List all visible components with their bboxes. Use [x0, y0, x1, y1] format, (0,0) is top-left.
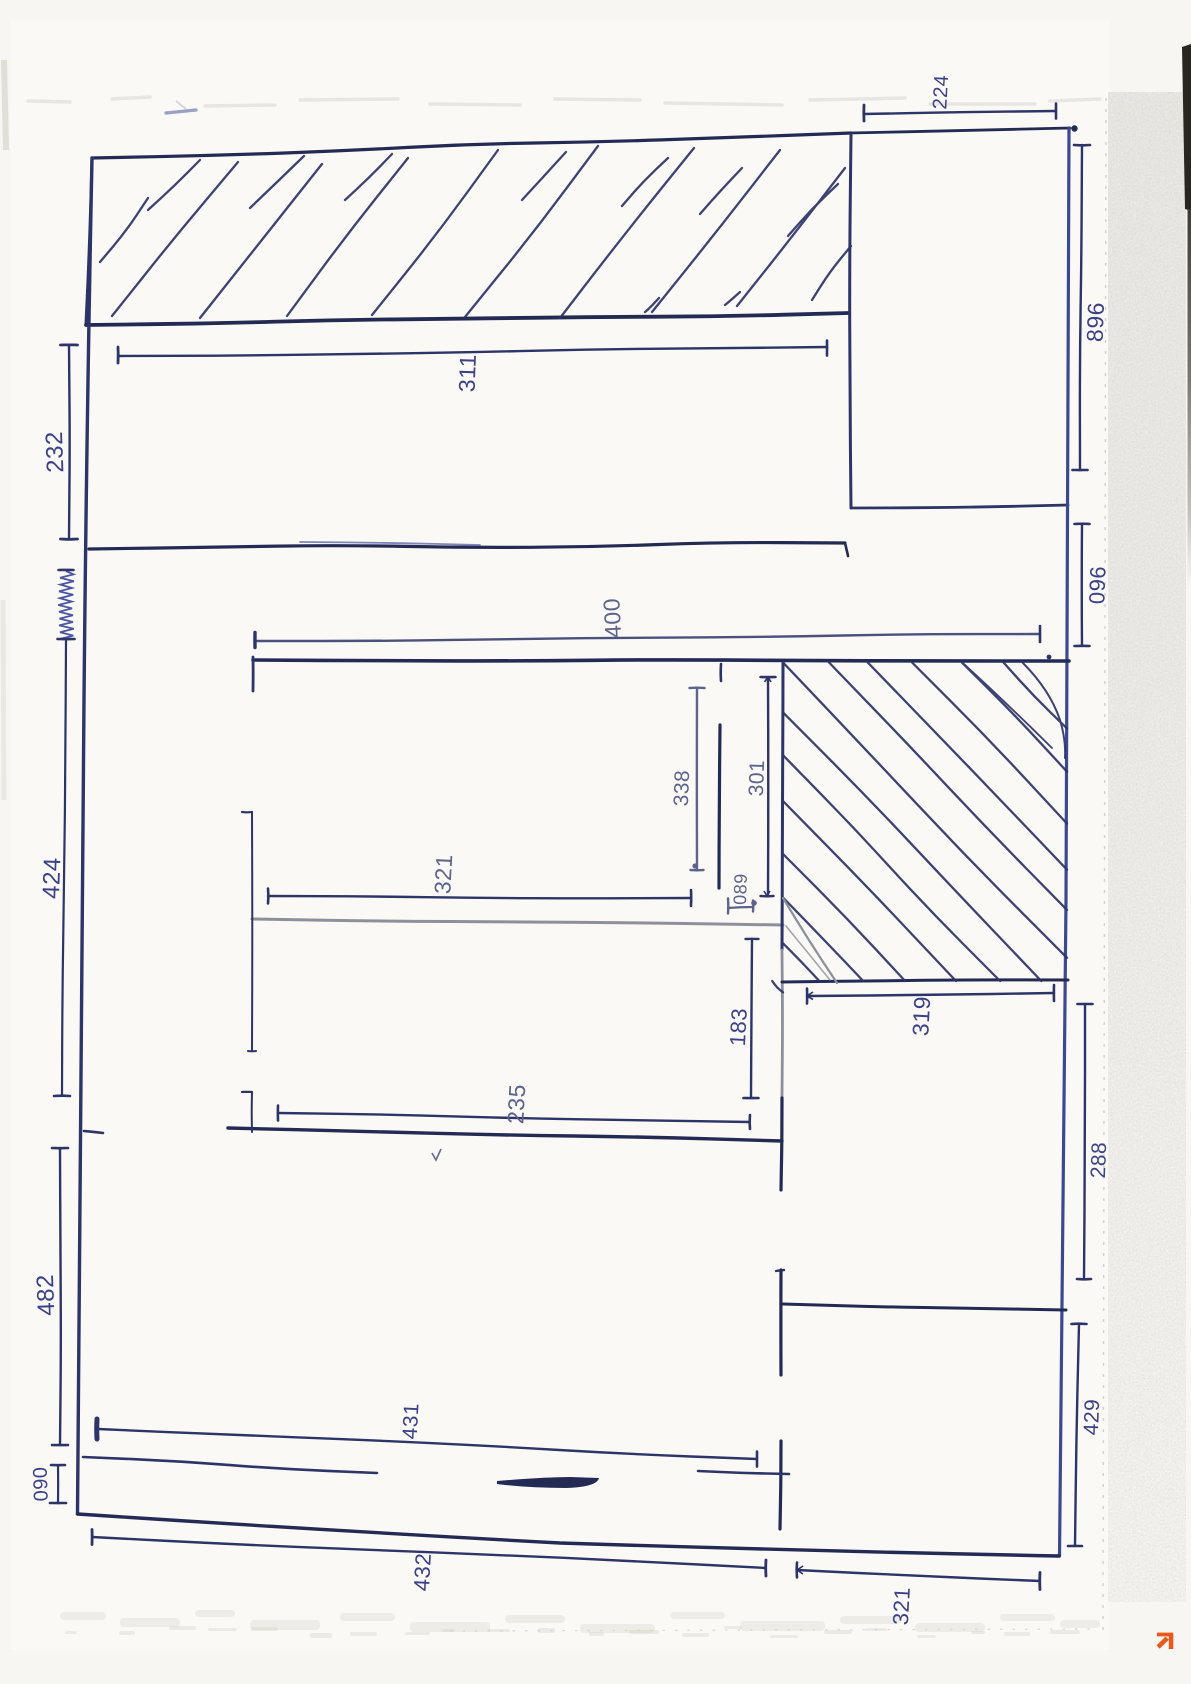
svg-text:090: 090 [30, 1466, 53, 1502]
svg-text:400: 400 [598, 597, 626, 638]
svg-text:319: 319 [907, 995, 935, 1036]
svg-text:301: 301 [745, 759, 769, 796]
svg-text:089: 089 [730, 873, 751, 905]
svg-text:288: 288 [1087, 1141, 1111, 1178]
svg-text:896: 896 [1082, 302, 1109, 343]
svg-text:321: 321 [888, 1586, 915, 1625]
svg-text:311: 311 [454, 353, 481, 392]
svg-text:429: 429 [1080, 1398, 1104, 1435]
svg-text:424: 424 [38, 857, 66, 899]
svg-text:232: 232 [41, 431, 69, 473]
svg-text:431: 431 [399, 1402, 424, 1440]
svg-text:482: 482 [32, 1274, 60, 1316]
svg-text:224: 224 [929, 74, 953, 110]
svg-text:235: 235 [502, 1083, 530, 1124]
svg-text:338: 338 [670, 769, 694, 806]
svg-text:096: 096 [1084, 565, 1110, 604]
svg-text:183: 183 [725, 1007, 752, 1046]
svg-text:432: 432 [409, 1552, 436, 1591]
svg-text:321: 321 [429, 853, 457, 894]
